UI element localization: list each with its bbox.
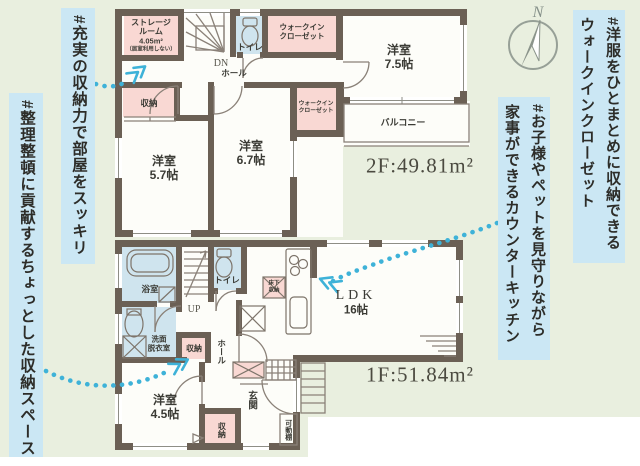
approach-tiles [301,363,325,413]
label-hall-1f: ホール [216,339,225,365]
label-room75-name: 洋室 [387,44,411,56]
label-balcony: バルコニー [381,119,426,128]
annotation-left-inner-text: #充実の収納力で部屋をスッキリ [61,15,95,264]
label-toilet-2f: トイレ [237,43,263,52]
label-closet-mid: 収納 [186,345,202,353]
label-underfloor-2: 収納 [268,288,279,294]
label-entrance: 玄関 [246,391,256,410]
arrow-storage [96,81,127,86]
floor1-area-label: 1F:51.84m² [366,365,474,386]
label-ldk-size: 16帖 [344,305,368,317]
annotation-right-mid: #お子様やペットを見守りながら 家事ができるカウンターキッチン [498,97,550,360]
label-room45-name: 洋室 [153,394,177,406]
label-closet-bottom: 収納 [217,422,226,438]
label-movable-shelf: 可動棚 [284,420,292,441]
annotation-left-inner: #充実の収納力で部屋をスッキリ [61,8,95,264]
compass [509,20,557,69]
annotation-right-top-line2: ウォークインクローゼット [573,17,599,263]
label-storage-room-4: （居室利用しない） [126,47,176,53]
label-room67-name: 洋室 [239,140,263,152]
label-wic-top-2: クローゼット [280,32,325,40]
annotation-right-mid-line1: #お子様やペットを見守りながら [524,104,550,360]
label-room45-size: 4.5帖 [151,408,180,420]
compass-north-label: N [533,4,544,22]
label-wic-right-1: ウォークイン [299,102,334,108]
label-toilet-1f: トイレ [214,276,240,285]
label-storage-room-2: ルーム [139,28,163,36]
floor2-area-label: 2F:49.81m² [366,156,474,177]
label-closet-2f: 収納 [140,99,157,108]
annotation-right-top: #洋服をひとまとめに収納できる ウォークインクローゼット [573,10,625,263]
annotation-right-top-line1: #洋服をひとまとめに収納できる [599,17,625,263]
label-washroom-1: 洗面 [152,335,167,343]
label-storage-room-1: ストレージ [131,19,171,27]
label-stairs-up: UP [188,305,201,315]
label-room75-size: 7.5帖 [385,58,414,70]
label-washroom-2: 脱衣室 [148,344,171,352]
annotation-left-outer-text: #整理整頓に貢献するちょっとした収納スペース [9,100,43,457]
label-room57-name: 洋室 [152,155,176,167]
label-room67-size: 6.7帖 [237,154,266,166]
annotation-left-outer: #整理整頓に貢献するちょっとした収納スペース [9,93,43,457]
label-room57-size: 5.7帖 [150,169,179,181]
annotation-right-mid-line2: 家事ができるカウンターキッチン [498,104,524,360]
label-ldk-name: LDK [336,289,377,303]
label-underfloor-1: 床下 [268,281,279,287]
label-wic-top-1: ウォークイン [280,23,325,31]
label-storage-room-3: 4.05m² [139,37,163,45]
label-hall-2f: ホール [221,69,247,78]
label-wic-right-2: クローゼット [299,109,334,115]
label-bath: 浴室 [141,285,158,294]
